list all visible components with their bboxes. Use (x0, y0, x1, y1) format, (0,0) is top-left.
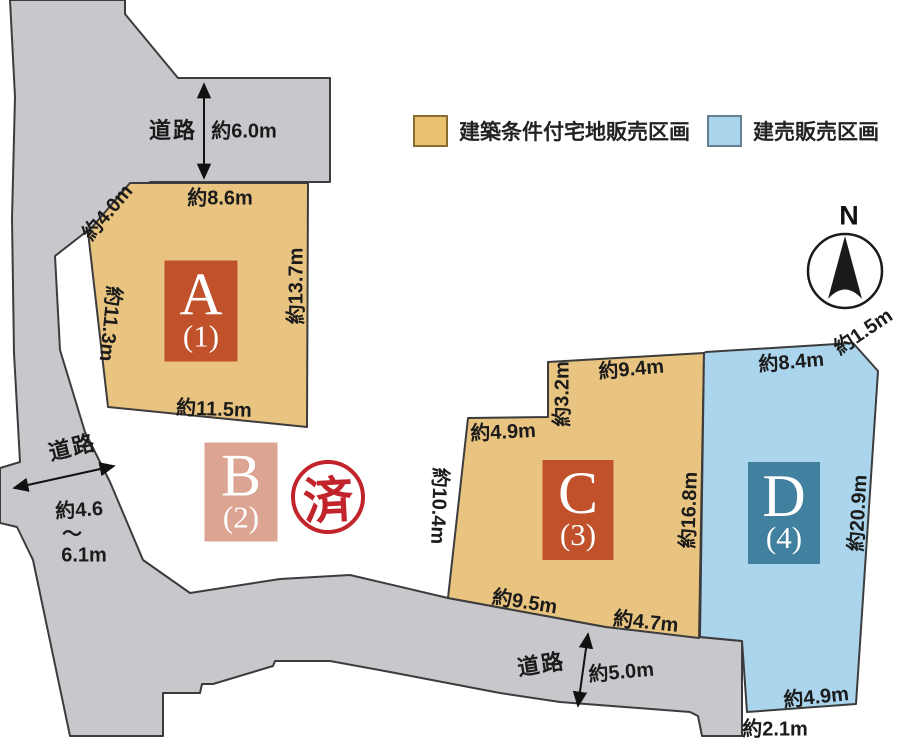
lot-a-letter: A (179, 269, 222, 320)
road-left-width-3: 6.1m (61, 545, 107, 568)
compass-north-label: N (839, 201, 859, 232)
dim-c-step-top: 約4.9m (469, 414, 536, 446)
lot-d-label-box: D (4) (748, 462, 820, 564)
lot-c-label-box: C (3) (543, 460, 614, 560)
legend-label-conditional: 建築条件付宅地販売区画 (459, 116, 690, 146)
lot-d-number: (4) (766, 522, 802, 555)
dim-d-bottom: 約2.1m (742, 713, 808, 742)
dim-c-step-side: 約3.2m (546, 361, 575, 427)
compass-needle-icon (828, 236, 862, 299)
legend-swatch-blue (707, 115, 742, 147)
lot-c-letter: C (558, 468, 598, 519)
dim-a-top: 約8.6m (187, 182, 253, 211)
road-top-width: 約6.0m (211, 115, 277, 144)
dim-c-right: 約16.8m (671, 471, 703, 549)
lot-b-letter: B (221, 450, 261, 501)
lot-c-number: (3) (560, 519, 596, 552)
legend-swatch-tan (413, 115, 448, 147)
dim-a-right: 約13.7m (280, 248, 309, 325)
lot-b-label-box: B (2) (205, 443, 278, 542)
lot-a-label-box: A (1) (165, 261, 238, 362)
lot-b-number: (2) (223, 501, 259, 534)
road-bottom-width: 約5.0m (587, 653, 655, 688)
dim-c-top: 約9.4m (597, 350, 665, 385)
road-left-width-2: 〜 (62, 518, 82, 547)
dim-d-right: 約20.9m (840, 474, 873, 552)
road-top-label: 道路 (149, 113, 197, 145)
lot-a-number: (1) (183, 320, 219, 353)
dim-a-bottom: 約11.5m (176, 391, 253, 423)
legend-item-conditional: 建築条件付宅地販売区画 (413, 115, 690, 147)
lot-d-letter: D (762, 471, 805, 522)
dim-c-left: 約10.4m (425, 467, 457, 545)
lot-layout-diagram: 建築条件付宅地販売区画 建売販売区画 N 道路 約6.0m 道路 約4.6 〜 … (0, 0, 900, 743)
legend-item-built: 建売販売区画 (707, 115, 879, 147)
legend-label-built: 建売販売区画 (753, 116, 879, 146)
dim-d-top: 約8.4m (757, 343, 825, 378)
